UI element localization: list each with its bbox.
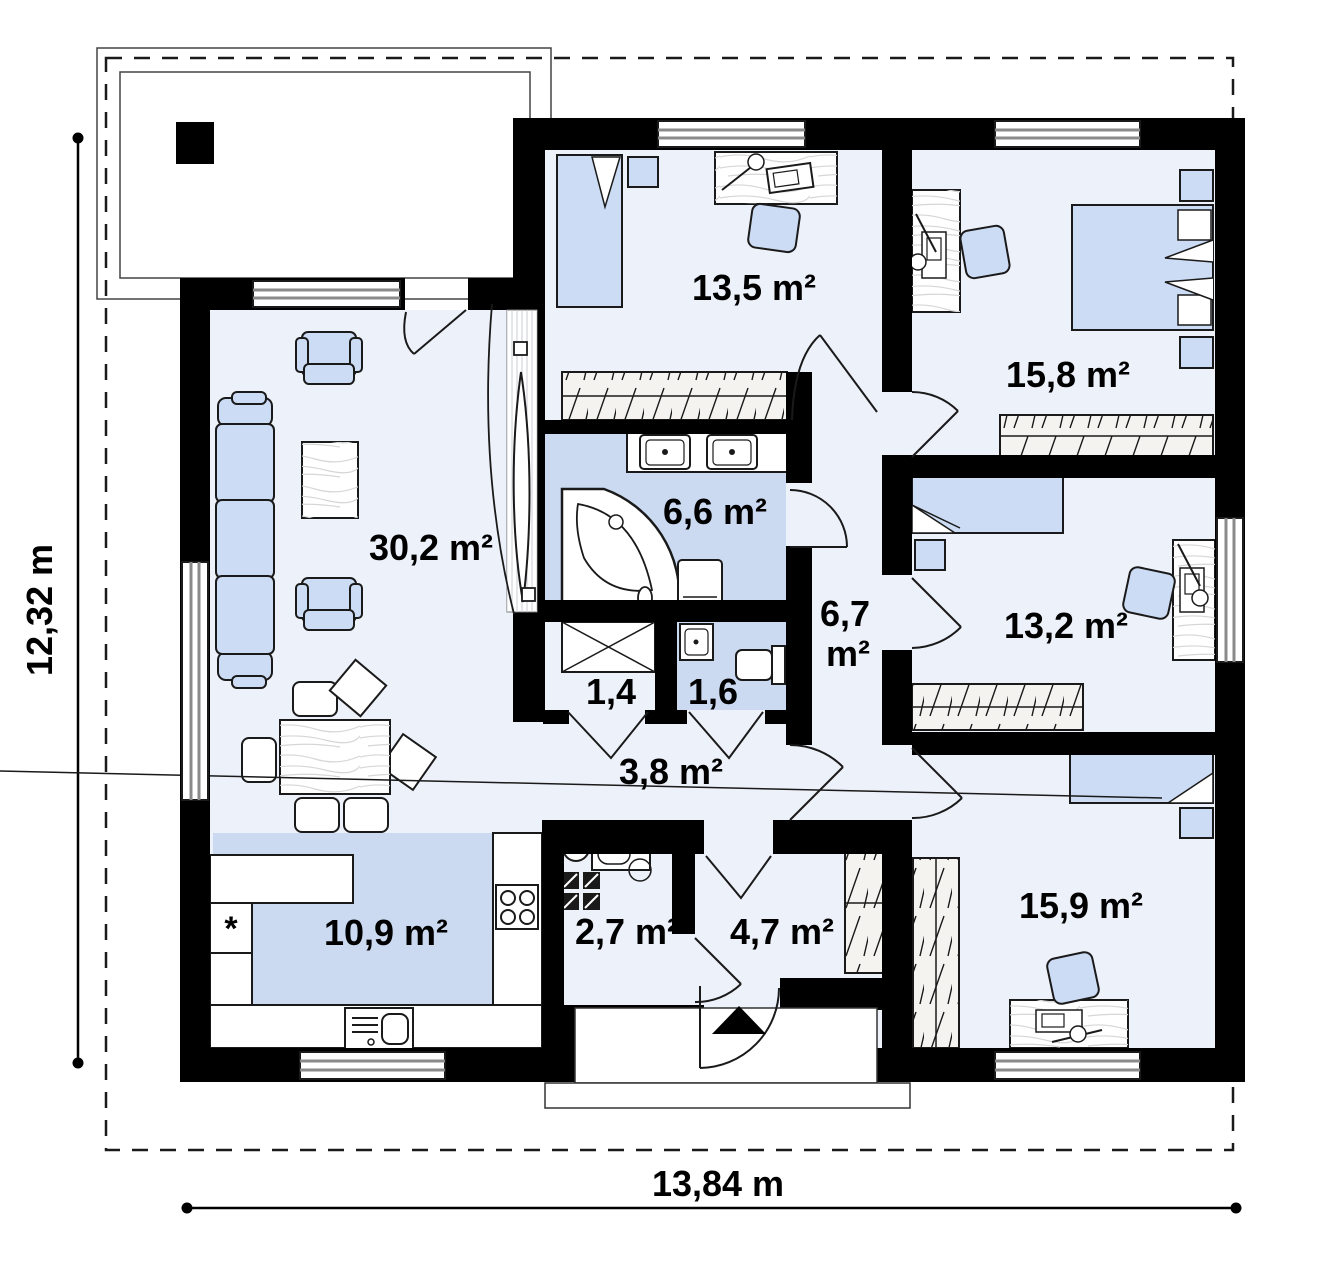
floor-plan-page: 30,2 m² 10,9 m² 13,5 m² 15,8 m² 6,6 m² 6… (0, 0, 1337, 1280)
room-label-bathroom: 6,6 m² (663, 491, 767, 532)
window-bedroom-right (995, 121, 1140, 147)
room-label-room-middle: 13,2 m² (1004, 605, 1128, 646)
room-label-kitchen: 10,9 m² (324, 912, 448, 953)
wc-sink (680, 624, 713, 660)
nightstand (1180, 808, 1213, 838)
nightstand (628, 157, 658, 187)
bathroom-vanity (627, 432, 787, 472)
chimney (176, 122, 214, 164)
room-label-corridor: 3,8 m² (619, 751, 723, 792)
nightstand (1180, 337, 1213, 368)
window-bedroom-top (658, 121, 805, 147)
desk-bedroom-bottom (1010, 1000, 1128, 1048)
room-label-wc: 1,6 (688, 671, 738, 712)
wardrobe-room-middle (912, 684, 1083, 730)
desk-room-middle (1173, 540, 1215, 660)
bed-double (1072, 205, 1213, 330)
armchair-bottom (296, 578, 362, 630)
desk-chair (1046, 951, 1101, 1006)
nightstand (915, 540, 945, 570)
room-label-closet: 1,4 (586, 671, 636, 712)
dimension-depth-label: 12,32 m (19, 544, 60, 676)
room-label-bedroom-right: 15,8 m² (1006, 354, 1130, 395)
stove (496, 885, 538, 929)
window-room-middle-right (1217, 518, 1243, 662)
room-label-entry: 4,7 m² (730, 911, 834, 952)
window-bedroom-bottom (995, 1052, 1140, 1079)
entrance-porch (575, 1008, 877, 1083)
wardrobe-bedroom-right (1000, 415, 1213, 458)
floor-plan-drawing: 30,2 m² 10,9 m² 13,5 m² 15,8 m² 6,6 m² 6… (0, 0, 1337, 1280)
room-label-bedroom-top: 13,5 m² (692, 267, 816, 308)
armchair-top (296, 332, 362, 384)
desk-chair (1122, 566, 1177, 621)
entrance-step (545, 1083, 910, 1108)
window-living-top (253, 281, 400, 307)
toilet-bathroom (678, 560, 722, 604)
room-label-living: 30,2 m² (369, 527, 493, 568)
sofa (216, 392, 274, 688)
window-kitchen-bottom (300, 1052, 445, 1079)
dimension-width-label: 13,84 m (652, 1163, 784, 1204)
desk-top-room (715, 152, 837, 204)
coffee-table (302, 442, 358, 518)
room-label-bedroom-bottom: 15,9 m² (1019, 885, 1143, 926)
nightstand (1180, 170, 1213, 201)
wc-toilet (736, 646, 785, 684)
bed-single-middle (912, 473, 1063, 533)
kitchen-sink (345, 1008, 413, 1052)
room-label-utility: 2,7 m² (575, 911, 679, 952)
wardrobe-top-room (562, 372, 787, 420)
desk-chair (959, 225, 1011, 280)
room-label-hall-unit: m² (826, 633, 870, 674)
bed-single-top (557, 155, 622, 307)
terrace (120, 72, 530, 278)
kitchen-star-symbol: * (224, 910, 238, 948)
wardrobe-bedroom-bottom (913, 858, 959, 1048)
room-label-hall-value: 6,7 (820, 593, 870, 634)
closet-shelf (562, 622, 655, 672)
desk-bedroom-right (910, 190, 960, 312)
window-living-left (182, 562, 208, 800)
desk-chair (747, 203, 801, 253)
